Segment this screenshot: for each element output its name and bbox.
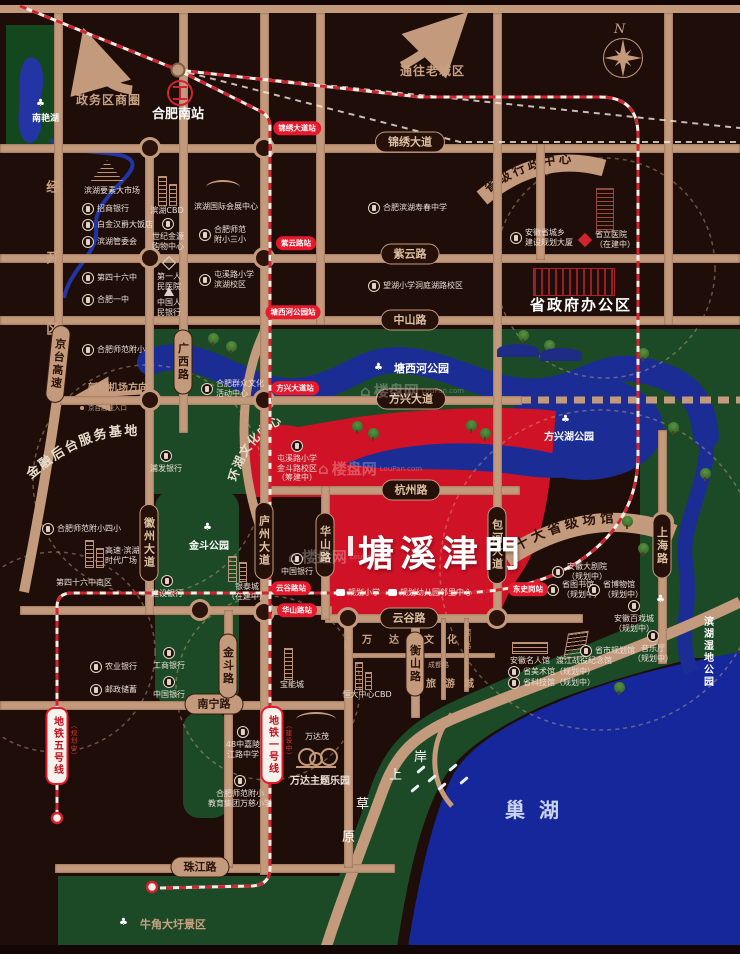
jingtai-expressway-road	[24, 392, 58, 592]
poi-school: 合肥师范附小四小	[42, 523, 121, 535]
watermark: ⌂楼盘网LouPan.com	[318, 458, 422, 479]
road-node	[340, 610, 356, 626]
compass-n-label: N	[614, 22, 625, 38]
location-map: 省级行政中心 十大省级场馆 金融后台服务基地 环湖文化中心	[0, 0, 740, 954]
school-icon	[82, 294, 94, 306]
venue-icon	[552, 566, 564, 578]
poi-science-museum: 省科技馆（规划中）	[508, 677, 595, 689]
svg-text:金融后台服务基地: 金融后台服务基地	[23, 423, 140, 483]
poi-market: 滨湖要素大市场	[84, 186, 140, 196]
expo-center-icon	[206, 180, 240, 195]
road-badge-hangzhou: 杭州路	[382, 480, 441, 501]
school-icon	[199, 274, 211, 286]
poi-mall: 世纪金源 购物中心	[152, 218, 184, 251]
road-badge-jindou: 金斗路	[219, 634, 238, 699]
poi-planning-tower: 安徽省城乡 建设规划大厦	[510, 228, 573, 247]
nanyan-lake-label: 南艳湖	[32, 114, 59, 125]
chaohu-lake-label: 巢湖	[505, 798, 573, 823]
poi-bank: 工商银行	[153, 647, 185, 671]
station-jinxiu: 锦绣大道站	[273, 121, 321, 135]
road-node	[256, 250, 272, 266]
poi-school: 合肥师范附小	[82, 344, 145, 356]
poi-committee: 滨湖管委会	[82, 236, 137, 248]
cbd-tower-icon	[158, 176, 167, 206]
poi-school: 合肥滨湖寿春中学	[368, 202, 447, 214]
poi-bank: 中国人 民银行	[157, 287, 181, 317]
station-yungu: 云谷路站	[271, 581, 311, 595]
bank-icon	[90, 661, 102, 673]
poi-school: 第四十六中	[82, 272, 137, 284]
school-icon	[42, 523, 54, 535]
lvyoucheng-label: 旅游城	[426, 679, 483, 692]
road-ziyun	[0, 254, 740, 263]
bank-icon	[164, 287, 174, 296]
hotel-icon	[82, 219, 94, 231]
kindergarten-icon	[388, 589, 397, 596]
road-badge-huizhou: 徽州大道	[140, 504, 159, 582]
metro-line1-badge: 地铁一号线	[261, 706, 284, 784]
metro-line1-status: （建设中）	[283, 722, 293, 760]
station-fangxing: 方兴大道站	[271, 381, 319, 395]
road-zhongshan	[0, 316, 740, 325]
cbd-tower-icon	[169, 184, 177, 206]
bank-icon	[82, 203, 94, 215]
poi-planned-kindergarten: 规划幼儿园	[388, 588, 440, 598]
poi-celebrity-hall: 安徽名人馆	[510, 656, 550, 666]
road-mid-north	[316, 13, 325, 325]
poi-wanda-park: 万达主题乐园	[290, 776, 350, 788]
mall-icon	[162, 218, 174, 230]
poi-theatre: 安徽大剧院 （规划中）	[552, 562, 607, 581]
baoneng-tower-icon	[284, 648, 293, 680]
station-ziyun: 紫云路站	[276, 236, 316, 250]
compass-rose-icon	[603, 38, 643, 78]
office-icon	[82, 236, 94, 248]
finance-base-curved-label: 金融后台服务基地	[23, 423, 140, 483]
poi-neighborhood-center: 邻里中心	[440, 588, 472, 598]
railway-logo-icon	[167, 80, 193, 106]
metro-line5-badge: 地铁五号线	[46, 707, 69, 785]
plaza-tower-icon	[85, 540, 94, 568]
poi-plaza: 高速·滨湖 时代广场	[105, 546, 140, 565]
gov-building-icon	[533, 268, 615, 296]
chaohu-lake-water	[407, 652, 740, 954]
poi-bank: 农业银行	[90, 661, 137, 673]
wetland-park-label: 滨湖湿地公园	[700, 616, 713, 688]
gov-office-label: 省政府办公区	[530, 296, 632, 315]
venue-icon	[547, 584, 559, 596]
school-icon	[82, 272, 94, 284]
coast-char: 岸	[414, 750, 427, 766]
venue-icon	[628, 600, 640, 612]
tangxihe-park-label: 塘西河公园	[394, 362, 449, 376]
culture-icon	[201, 383, 213, 395]
poi-school: 第四十六中南区	[56, 578, 112, 588]
coast-char: 上	[389, 768, 402, 784]
poi-cbd: 滨湖CBD	[150, 206, 183, 216]
school-icon	[368, 280, 380, 292]
poi-wanda-mall: 万达茂	[305, 732, 329, 742]
entry-dot-icon	[80, 406, 84, 410]
school-icon	[336, 589, 345, 596]
road-badge-shanghai: 上海路	[653, 514, 672, 579]
watermark-house-icon: ⌂	[360, 382, 371, 400]
poi-bank: 建设银行	[151, 575, 183, 599]
road-badge-guangxi: 广西路	[174, 330, 193, 395]
niujiao-scenic-label: 牛角大圩景区	[140, 918, 206, 932]
road-badge-zhujiang: 珠江路	[171, 857, 230, 878]
poi-bank: 中国银行	[153, 676, 185, 700]
school-icon	[234, 775, 246, 787]
bank-icon	[161, 575, 173, 587]
poi-bank: 邮政储蓄	[90, 684, 137, 696]
jindou-park-label: 金斗公园	[189, 541, 229, 554]
airport-direction-label: 新桥机场方向	[88, 383, 148, 396]
tower-icon	[510, 232, 522, 244]
bank-icon	[163, 647, 175, 659]
road-badge-luzhou: 庐州大道	[255, 502, 274, 580]
road-east-north	[664, 13, 673, 325]
hengda-tower-icon	[355, 662, 363, 690]
road-badge-nanning: 南宁路	[185, 694, 244, 715]
school-icon	[237, 726, 249, 738]
hospital-tower-icon	[596, 188, 614, 232]
watermark: ⌂楼盘网LouPan.com	[288, 546, 392, 567]
road-badge-zhongshan: 中山路	[381, 310, 440, 331]
hefei-south-station-label: 合肥南站	[152, 107, 204, 123]
wenhua-label: 文化	[424, 635, 470, 648]
poi-culture: 合肥群众文化 活动中心	[201, 379, 264, 398]
road-node	[142, 250, 158, 266]
poi-school: 48中嘉陵 江路中学	[226, 726, 260, 759]
venue-icon	[588, 584, 600, 596]
road-node	[142, 140, 158, 156]
road-node	[192, 602, 208, 618]
road-jinxiu-ave	[0, 144, 740, 153]
poi-hotel: 白金汉爵大饭店	[82, 219, 153, 231]
school-icon	[199, 229, 211, 241]
plaza-tower-icon	[96, 548, 104, 568]
expressway-entry-label: 京台高速入口	[88, 404, 127, 412]
poi-school: 屯溪路小学 滨湖校区	[199, 270, 254, 289]
school-icon	[82, 344, 94, 356]
poi-museum: 省博物馆 （规划中）	[588, 580, 643, 599]
road-node	[256, 604, 272, 620]
road-badge-huashan: 华山路	[316, 513, 335, 578]
road-badge-yungu: 云谷路	[380, 608, 439, 629]
poi-school: 望湖小学洞庭湖路校区	[368, 280, 463, 292]
fangxing-lake-park-label: 方兴湖公园	[544, 432, 594, 445]
top-edge-road	[0, 5, 740, 13]
wanda-label: 万达	[362, 635, 416, 648]
watermark: ⌂楼盘网LouPan.com	[360, 380, 464, 401]
road-badge-ziyun: 紫云路	[381, 244, 440, 265]
metro-line5-status: （规划中）	[68, 722, 78, 760]
watermark-house-icon: ⌂	[288, 548, 299, 566]
bank-icon	[160, 450, 172, 462]
poi-bank: 招商银行	[82, 203, 129, 215]
road-label-chengdu: 成都路	[428, 661, 449, 670]
poi-baoneng: 宝能城	[280, 680, 304, 690]
poi-bank: 浦发银行	[150, 450, 182, 474]
bank-icon	[163, 676, 175, 688]
old-town-label: 通往老城区	[400, 64, 465, 79]
poi-opera: 安徽百戏城 （规划中）	[614, 600, 654, 633]
poi-expo: 滨湖国际会展中心	[194, 202, 258, 212]
school-icon	[368, 202, 380, 214]
bank-icon	[90, 684, 102, 696]
hengda-tower-icon	[365, 672, 372, 690]
business-area-label: 政务区商圈	[76, 93, 141, 108]
poi-school: 屯溪路小学 金斗路校区 （筹建中）	[277, 440, 317, 483]
venue-icon	[508, 677, 520, 689]
hospital-icon	[578, 233, 592, 247]
coast-char: 原	[342, 830, 355, 846]
venue-icon	[647, 630, 659, 642]
road-node	[489, 610, 505, 626]
poi-school: 合肥一中	[82, 294, 129, 306]
old-town-arrow-icon	[402, 34, 446, 66]
business-area-arrow-icon	[92, 58, 132, 90]
road-label-zhuhai: 珠海路	[343, 628, 352, 649]
yintai-tower-icon	[228, 556, 237, 582]
yintai-tower-icon	[239, 562, 247, 582]
watermark-house-icon: ⌂	[318, 460, 329, 478]
wanda-mao-icon	[296, 712, 336, 727]
road-badge-jinxiu: 锦绣大道	[375, 132, 445, 153]
poi-memorial: 渡江战役纪念馆	[556, 656, 612, 666]
poi-hospital: 第一人 民医院	[157, 256, 181, 291]
poi-planned-school: 规划小学	[336, 588, 380, 598]
celebrity-hall-icon	[512, 642, 548, 654]
poi-hengda-cbd: 恒大中心CBD	[342, 690, 391, 700]
station-dongshigang: 东史岗站	[508, 582, 548, 596]
road-node	[256, 140, 272, 156]
poi-mall: 银泰城 （在建中）	[227, 582, 267, 601]
poi-hospital: 省立医院 （在建中）	[578, 230, 635, 249]
hospital-icon	[162, 256, 176, 270]
poi-school: 合肥师范 附小三小	[199, 225, 246, 244]
station-huashan: 华山路站	[277, 603, 317, 617]
coast-char: 草	[356, 797, 369, 813]
school-icon	[291, 440, 303, 452]
station-tangxihe-park: 塘西河公园站	[266, 305, 321, 319]
poi-concert-hall: 音乐厅 （规划中）	[633, 630, 673, 663]
road-yungu-east	[325, 614, 583, 623]
roller-coaster-icon	[296, 750, 336, 768]
